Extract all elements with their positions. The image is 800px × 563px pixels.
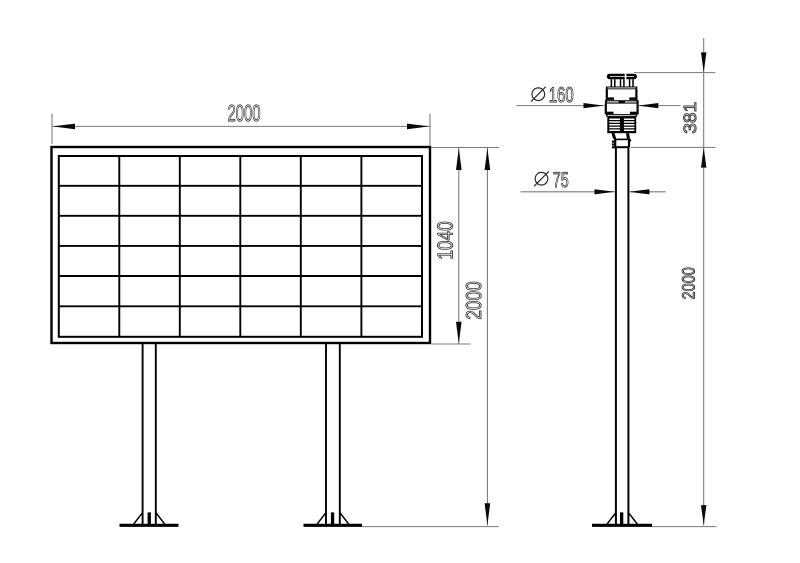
svg-text:160: 160 — [549, 83, 574, 107]
svg-text:75: 75 — [553, 168, 569, 192]
svg-text:2000: 2000 — [679, 267, 699, 299]
svg-text:381: 381 — [680, 102, 700, 134]
svg-text:2000: 2000 — [228, 100, 261, 126]
svg-text:2000: 2000 — [461, 281, 486, 319]
svg-text:1040: 1040 — [432, 221, 457, 259]
